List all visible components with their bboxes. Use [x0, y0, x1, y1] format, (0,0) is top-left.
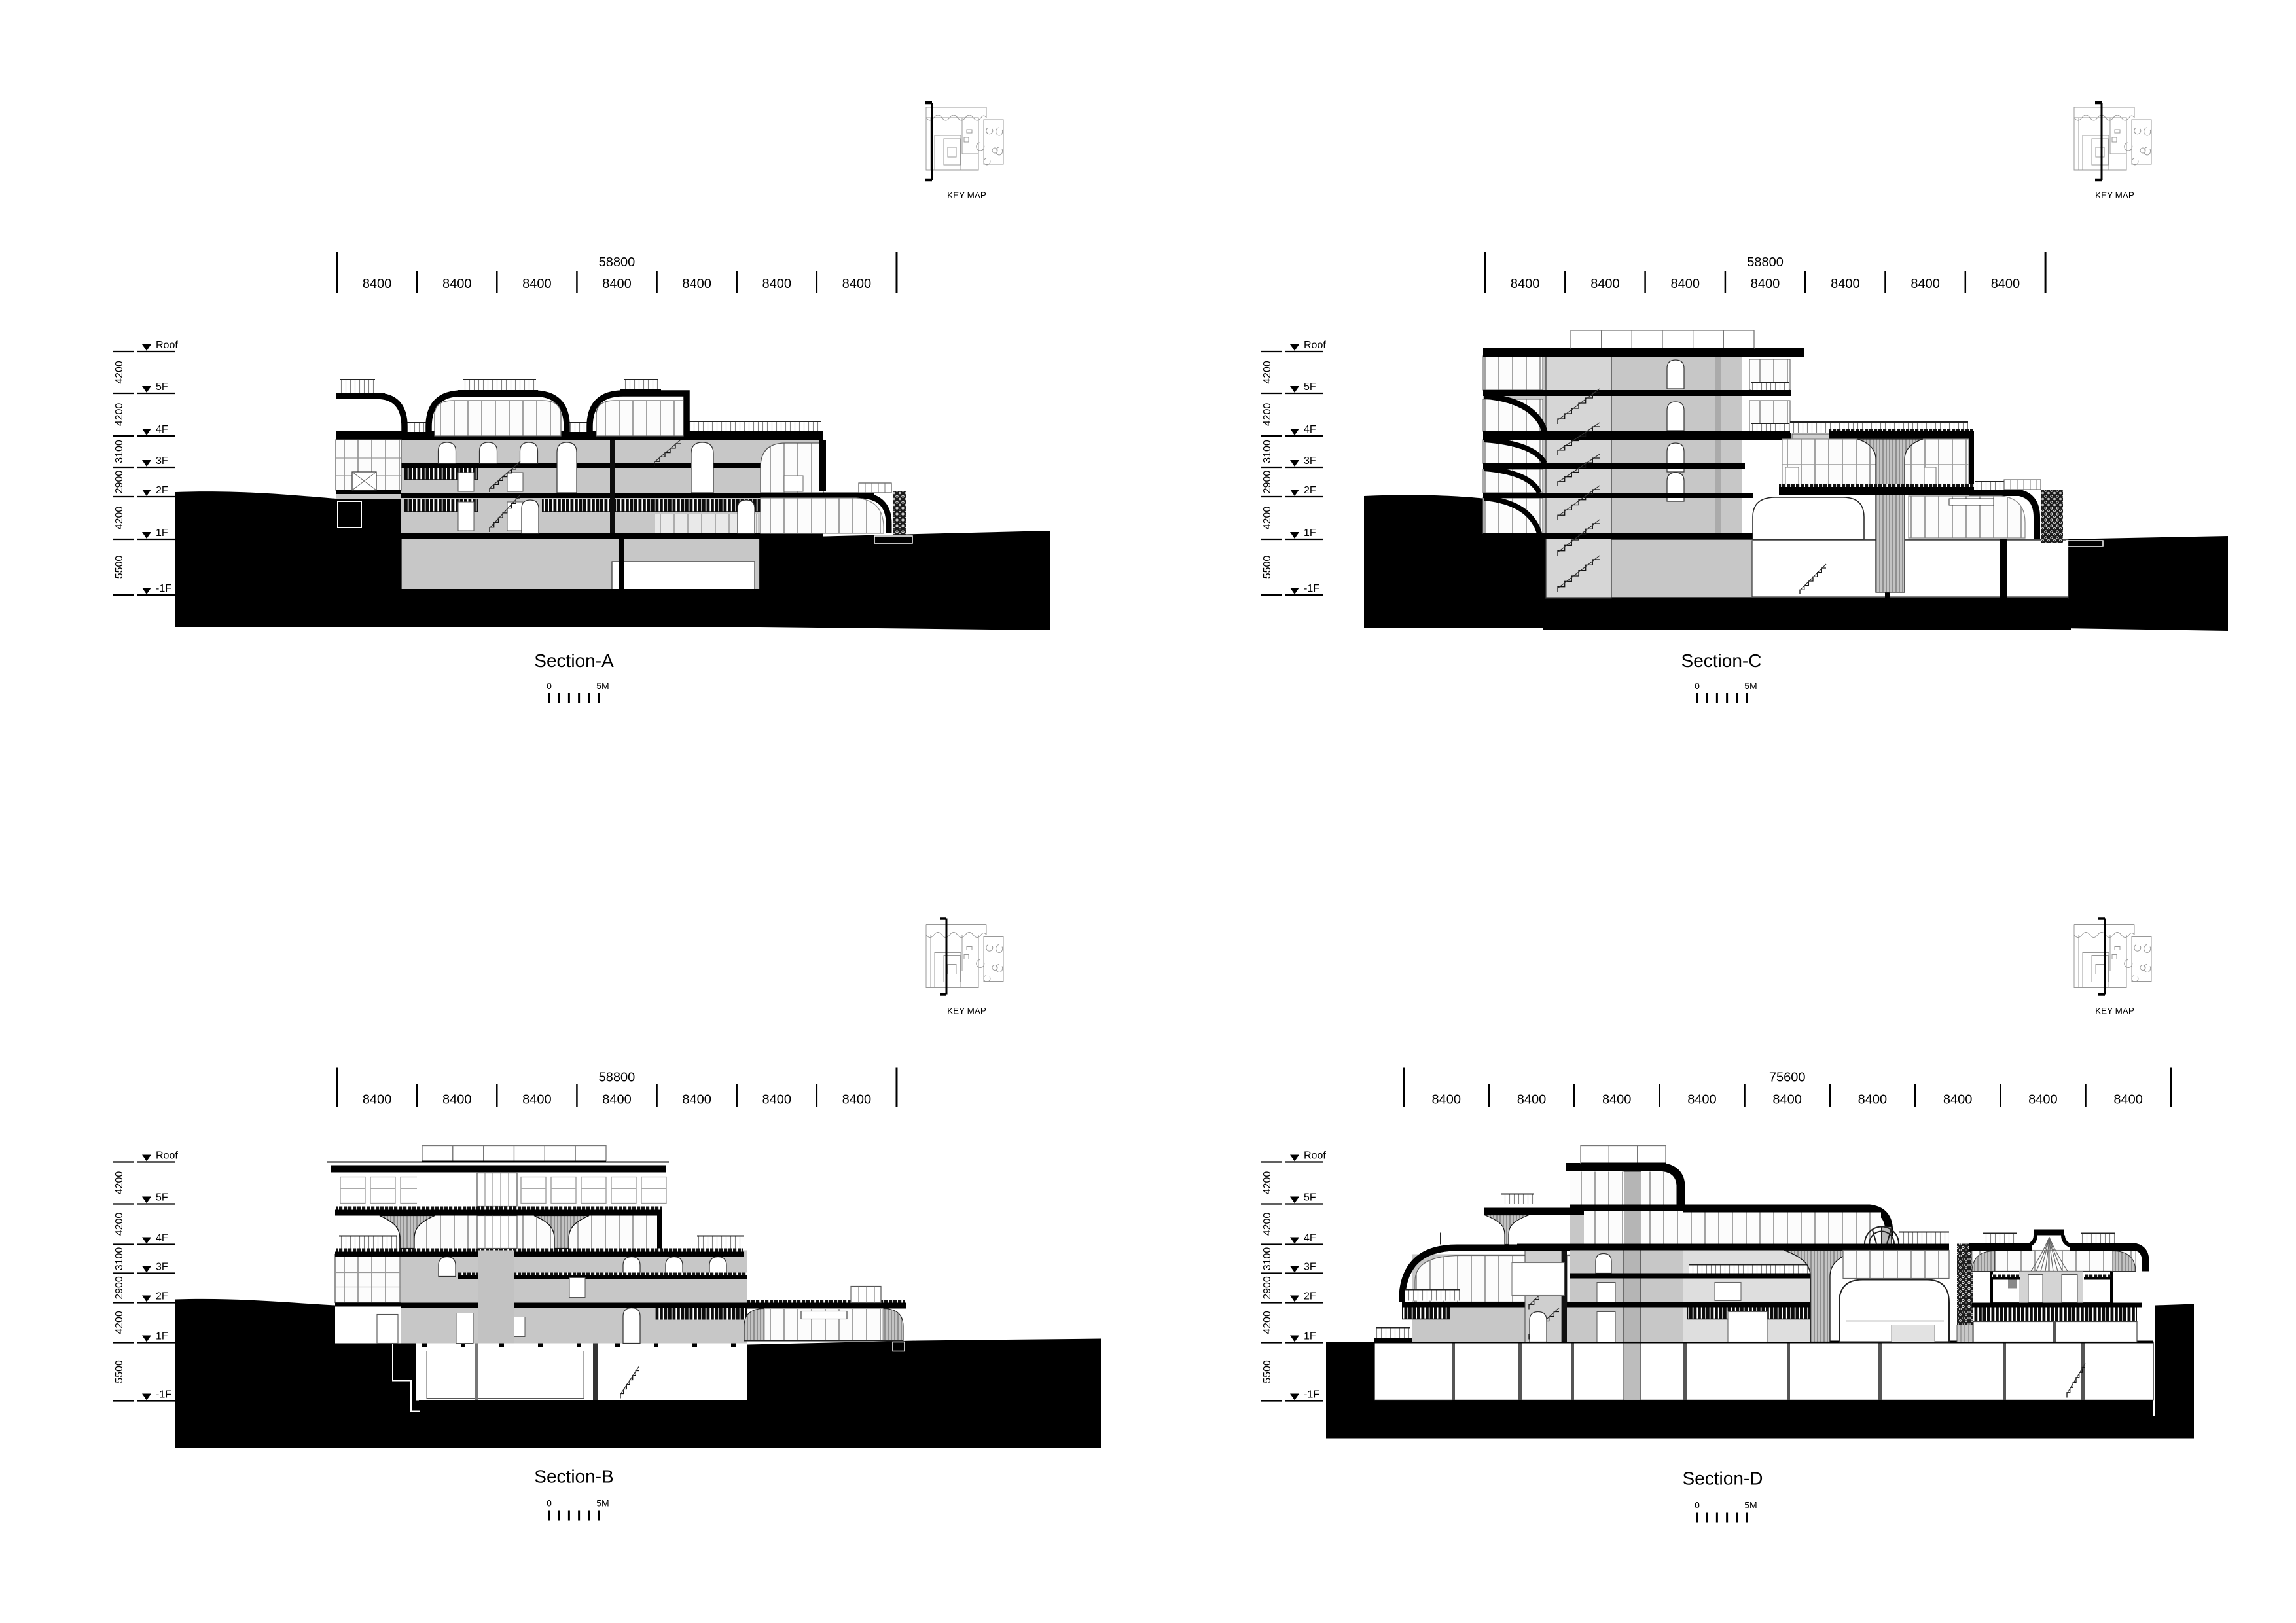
svg-text:8400: 8400 — [1751, 277, 1780, 291]
svg-text:5F: 5F — [1304, 1192, 1316, 1204]
svg-text:8400: 8400 — [762, 277, 792, 291]
svg-text:4200: 4200 — [1262, 403, 1273, 427]
svg-text:8400: 8400 — [682, 1093, 711, 1107]
svg-text:4200: 4200 — [1262, 361, 1273, 384]
svg-text:0: 0 — [547, 681, 552, 691]
svg-text:Section-B: Section-B — [534, 1467, 613, 1487]
svg-text:8400: 8400 — [842, 1093, 872, 1107]
svg-text:Section-A: Section-A — [534, 651, 614, 671]
svg-text:1F: 1F — [1304, 1331, 1316, 1342]
svg-text:8400: 8400 — [1517, 1093, 1547, 1107]
svg-text:1F: 1F — [1304, 527, 1316, 539]
svg-text:2900: 2900 — [114, 1276, 125, 1300]
svg-text:1F: 1F — [156, 1331, 168, 1342]
svg-text:8400: 8400 — [1858, 1093, 1888, 1107]
svg-text:0: 0 — [1695, 1500, 1700, 1510]
svg-text:-1F: -1F — [156, 583, 171, 594]
svg-text:8400: 8400 — [442, 1093, 472, 1107]
svg-text:Section-D: Section-D — [1683, 1469, 1763, 1489]
svg-text:58800: 58800 — [599, 1071, 636, 1085]
svg-text:Section-C: Section-C — [1681, 651, 1762, 671]
svg-text:KEY MAP: KEY MAP — [2095, 1007, 2134, 1016]
svg-text:4F: 4F — [156, 424, 168, 435]
svg-text:2900: 2900 — [114, 471, 125, 494]
svg-text:5F: 5F — [1304, 382, 1316, 393]
svg-text:8400: 8400 — [1590, 277, 1620, 291]
svg-text:8400: 8400 — [2113, 1093, 2143, 1107]
svg-text:5500: 5500 — [1262, 1360, 1273, 1383]
svg-text:4200: 4200 — [114, 1213, 125, 1236]
svg-text:8400: 8400 — [1772, 1093, 1802, 1107]
svg-text:5M: 5M — [596, 1498, 609, 1508]
svg-text:2F: 2F — [1304, 1291, 1316, 1302]
svg-text:8400: 8400 — [1831, 277, 1860, 291]
svg-text:8400: 8400 — [1910, 277, 1940, 291]
svg-text:8400: 8400 — [1511, 277, 1540, 291]
svg-text:-1F: -1F — [156, 1389, 171, 1400]
svg-text:8400: 8400 — [1431, 1093, 1461, 1107]
svg-text:4200: 4200 — [114, 507, 125, 530]
svg-text:4200: 4200 — [114, 1311, 125, 1334]
svg-text:5M: 5M — [1744, 681, 1757, 691]
svg-text:4F: 4F — [156, 1233, 168, 1244]
svg-text:8400: 8400 — [1687, 1093, 1717, 1107]
svg-text:Roof: Roof — [156, 340, 178, 351]
svg-text:2900: 2900 — [1262, 471, 1273, 494]
svg-text:0: 0 — [547, 1498, 552, 1508]
svg-text:58800: 58800 — [599, 255, 636, 270]
svg-text:-1F: -1F — [1304, 583, 1319, 594]
svg-text:KEY MAP: KEY MAP — [947, 190, 986, 200]
svg-text:5F: 5F — [156, 382, 168, 393]
svg-text:3100: 3100 — [114, 440, 125, 463]
svg-text:8400: 8400 — [602, 277, 632, 291]
svg-text:5M: 5M — [596, 681, 609, 691]
svg-text:4200: 4200 — [1262, 507, 1273, 530]
svg-text:3100: 3100 — [1262, 1247, 1273, 1271]
svg-text:8400: 8400 — [363, 1093, 392, 1107]
svg-text:Roof: Roof — [1304, 340, 1326, 351]
svg-text:-1F: -1F — [1304, 1389, 1319, 1400]
svg-text:5M: 5M — [1744, 1500, 1757, 1510]
svg-text:4200: 4200 — [1262, 1171, 1273, 1195]
svg-text:3100: 3100 — [114, 1247, 125, 1271]
svg-text:8400: 8400 — [1991, 277, 2020, 291]
svg-text:75600: 75600 — [1769, 1071, 1806, 1085]
svg-text:5F: 5F — [156, 1192, 168, 1204]
svg-text:2900: 2900 — [1262, 1276, 1273, 1300]
svg-text:8400: 8400 — [1671, 277, 1700, 291]
svg-text:4200: 4200 — [1262, 1213, 1273, 1236]
svg-text:5500: 5500 — [114, 556, 125, 579]
svg-text:8400: 8400 — [762, 1093, 792, 1107]
svg-text:5500: 5500 — [114, 1360, 125, 1383]
svg-text:3F: 3F — [156, 1262, 168, 1273]
svg-text:KEY MAP: KEY MAP — [947, 1007, 986, 1016]
svg-text:58800: 58800 — [1747, 255, 1784, 270]
svg-text:4200: 4200 — [114, 403, 125, 427]
svg-text:8400: 8400 — [602, 1093, 632, 1107]
svg-text:4F: 4F — [1304, 424, 1316, 435]
svg-text:8400: 8400 — [1943, 1093, 1973, 1107]
svg-text:Roof: Roof — [1304, 1150, 1326, 1162]
svg-text:2F: 2F — [156, 485, 168, 496]
svg-text:8400: 8400 — [1602, 1093, 1632, 1107]
svg-text:8400: 8400 — [2028, 1093, 2058, 1107]
svg-text:2F: 2F — [156, 1291, 168, 1302]
svg-text:3100: 3100 — [1262, 440, 1273, 463]
svg-text:8400: 8400 — [522, 277, 552, 291]
svg-text:KEY MAP: KEY MAP — [2095, 190, 2134, 200]
svg-text:4200: 4200 — [1262, 1311, 1273, 1334]
svg-text:0: 0 — [1695, 681, 1700, 691]
svg-text:4200: 4200 — [114, 1171, 125, 1195]
svg-text:3F: 3F — [1304, 455, 1316, 467]
svg-text:8400: 8400 — [363, 277, 392, 291]
svg-text:3F: 3F — [1304, 1262, 1316, 1273]
svg-text:5500: 5500 — [1262, 556, 1273, 579]
svg-text:8400: 8400 — [842, 277, 872, 291]
svg-text:4F: 4F — [1304, 1233, 1316, 1244]
svg-text:3F: 3F — [156, 455, 168, 467]
svg-text:8400: 8400 — [522, 1093, 552, 1107]
svg-text:4200: 4200 — [114, 361, 125, 384]
svg-text:8400: 8400 — [442, 277, 472, 291]
svg-text:2F: 2F — [1304, 485, 1316, 496]
svg-text:8400: 8400 — [682, 277, 711, 291]
svg-text:Roof: Roof — [156, 1150, 178, 1162]
svg-text:1F: 1F — [156, 527, 168, 539]
